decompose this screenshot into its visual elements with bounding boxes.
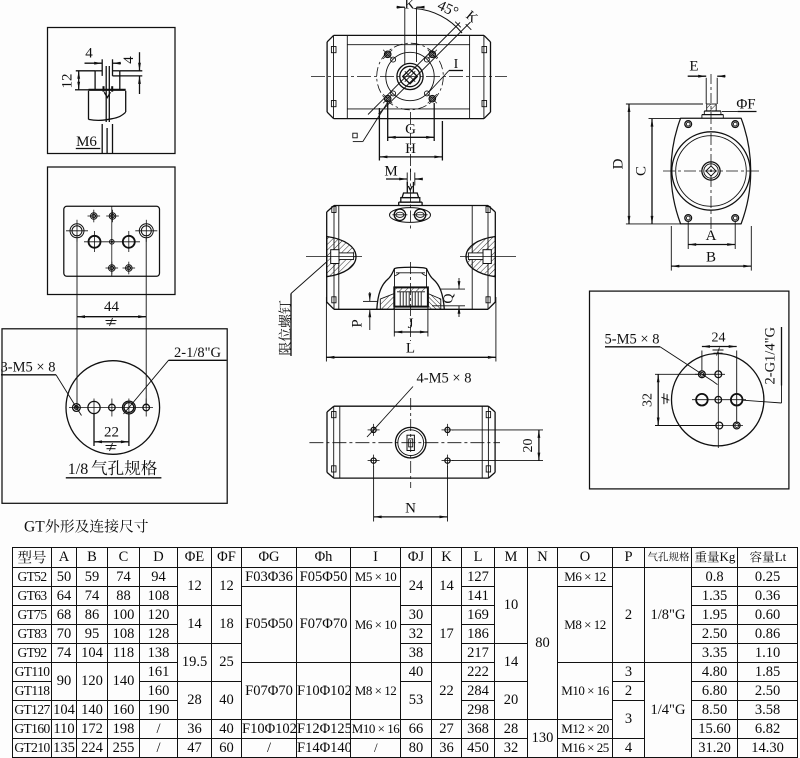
svg-text:4: 4: [85, 46, 93, 62]
svg-text:A: A: [706, 228, 717, 244]
svg-text:GT: GT: [24, 519, 45, 536]
svg-text:K: K: [463, 8, 480, 26]
svg-text:24: 24: [712, 331, 726, 346]
svg-text:L: L: [406, 341, 415, 357]
svg-text:2-G1/4"G: 2-G1/4"G: [763, 327, 779, 385]
svg-text:H: H: [405, 141, 416, 157]
svg-text:1/8: 1/8: [68, 461, 88, 478]
svg-text:K: K: [404, 0, 414, 13]
svg-text:20: 20: [521, 439, 536, 453]
svg-text:I: I: [454, 57, 459, 72]
svg-text:J: J: [408, 316, 414, 332]
svg-text:Q: Q: [442, 293, 457, 303]
svg-text:G: G: [405, 122, 416, 138]
svg-text:32: 32: [641, 393, 656, 407]
svg-text:4: 4: [121, 56, 137, 64]
svg-text:C: C: [634, 166, 650, 176]
svg-text:45°: 45°: [435, 0, 461, 21]
svg-text:D: D: [611, 158, 627, 169]
svg-text:N: N: [405, 501, 416, 517]
svg-text:P: P: [350, 319, 366, 327]
svg-text:22: 22: [104, 425, 119, 441]
svg-text:ΦF: ΦF: [736, 97, 755, 113]
svg-text:44: 44: [104, 299, 120, 315]
svg-text:12: 12: [60, 74, 76, 89]
svg-text:2-1/8"G: 2-1/8"G: [174, 345, 222, 361]
svg-text:3-M5 × 8: 3-M5 × 8: [1, 360, 56, 376]
svg-text:M6: M6: [76, 134, 97, 150]
svg-text:4-M5 × 8: 4-M5 × 8: [417, 371, 472, 387]
svg-text:M: M: [384, 164, 397, 180]
svg-text:5-M5 × 8: 5-M5 × 8: [605, 332, 660, 348]
svg-text:E: E: [689, 59, 698, 75]
svg-text:B: B: [706, 250, 716, 266]
